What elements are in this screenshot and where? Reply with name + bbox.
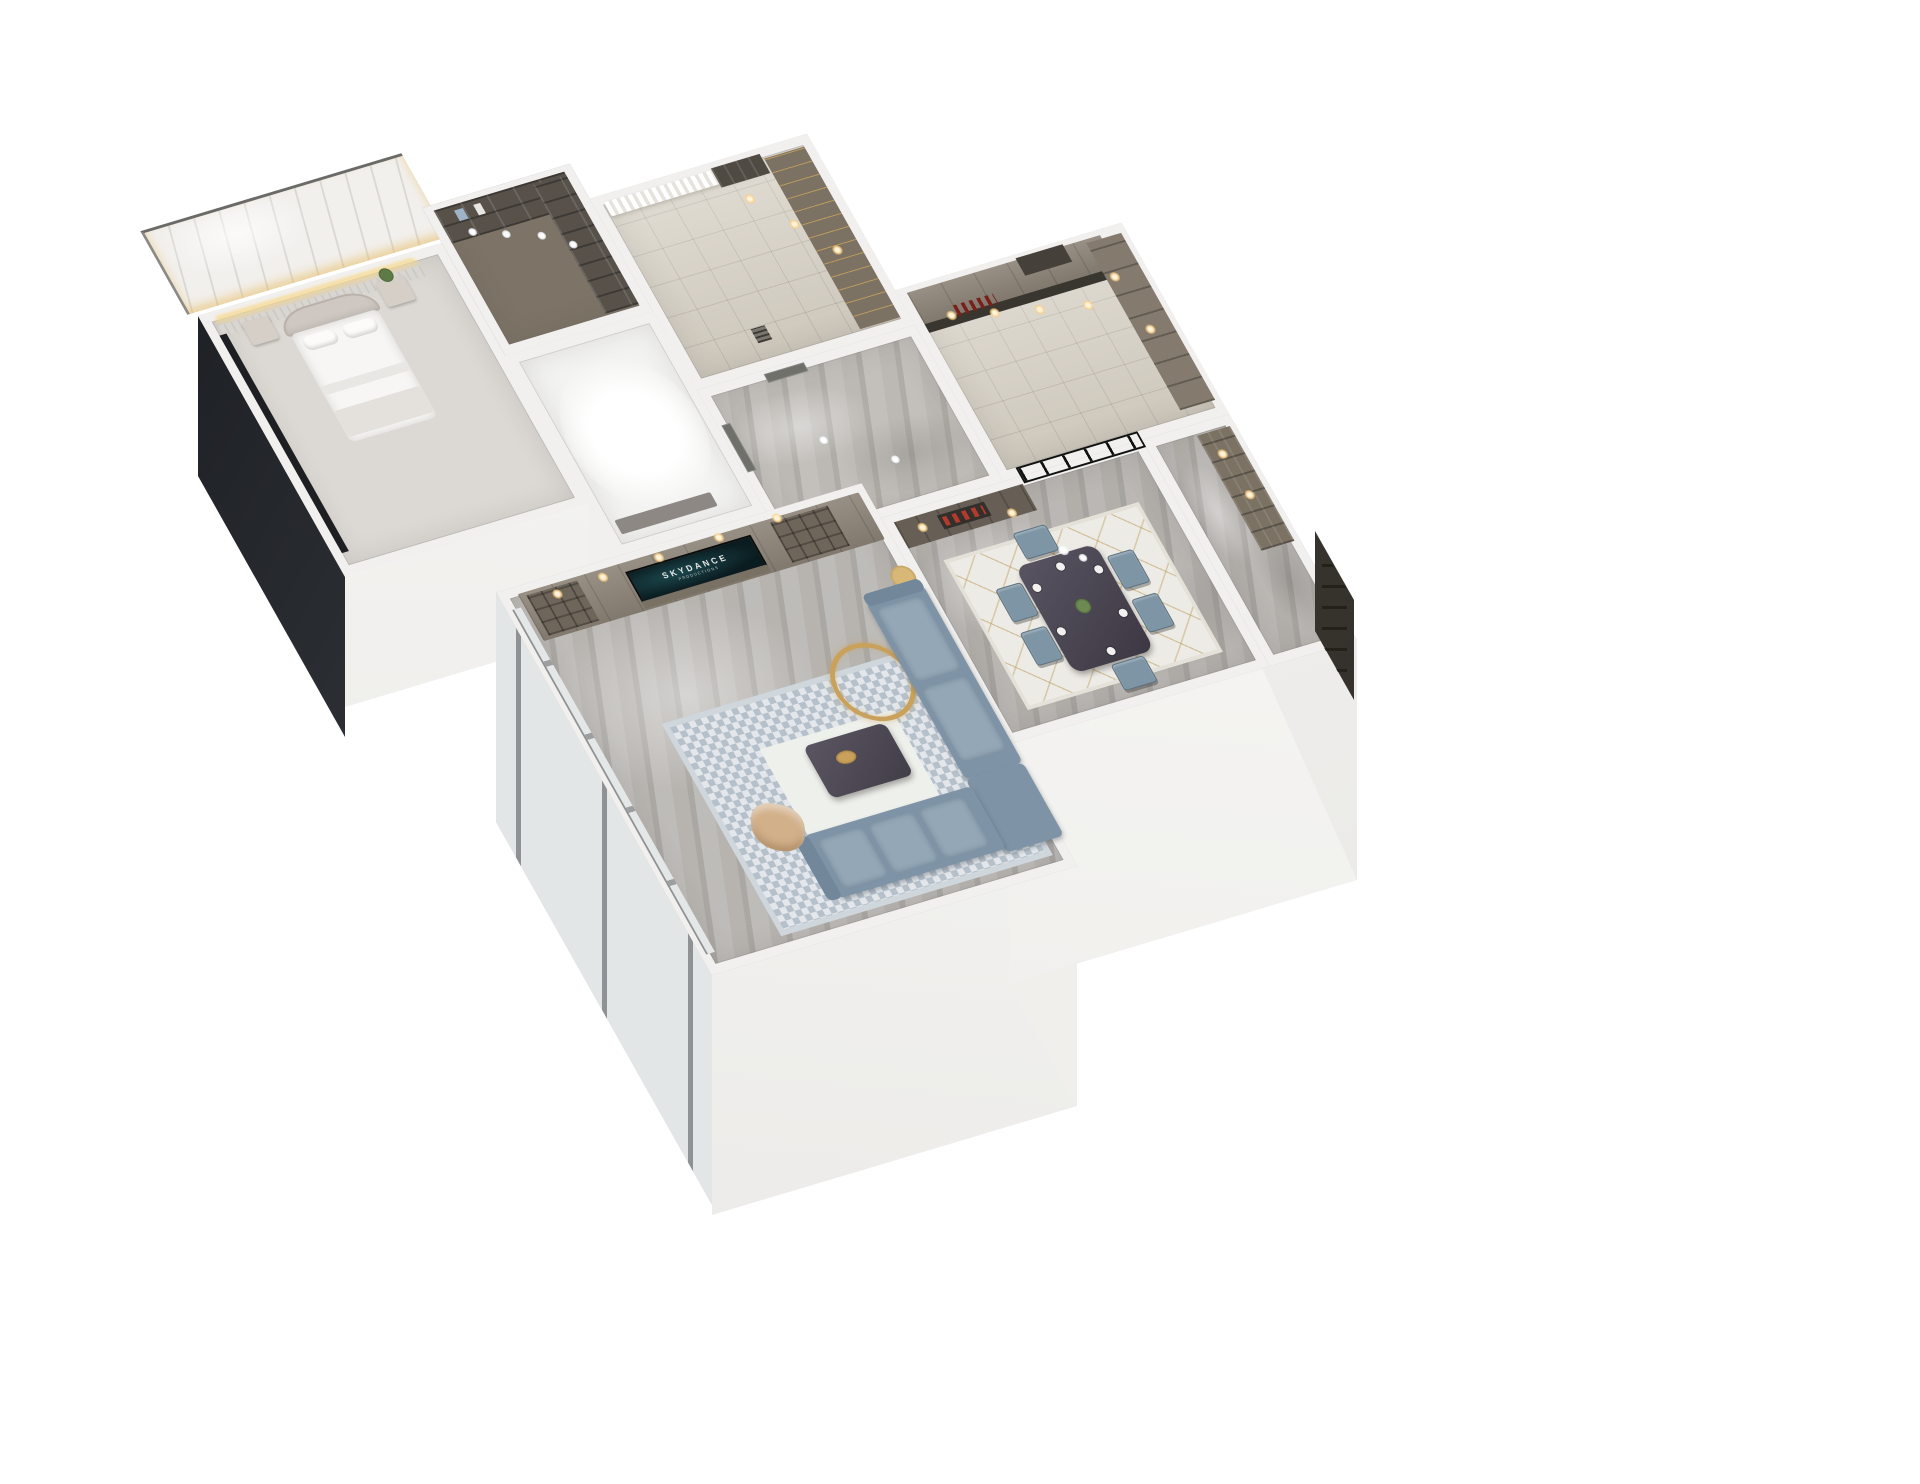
floorplan-render-canvas: SKYDANCE PRODUCTIONS [0,0,1920,1484]
